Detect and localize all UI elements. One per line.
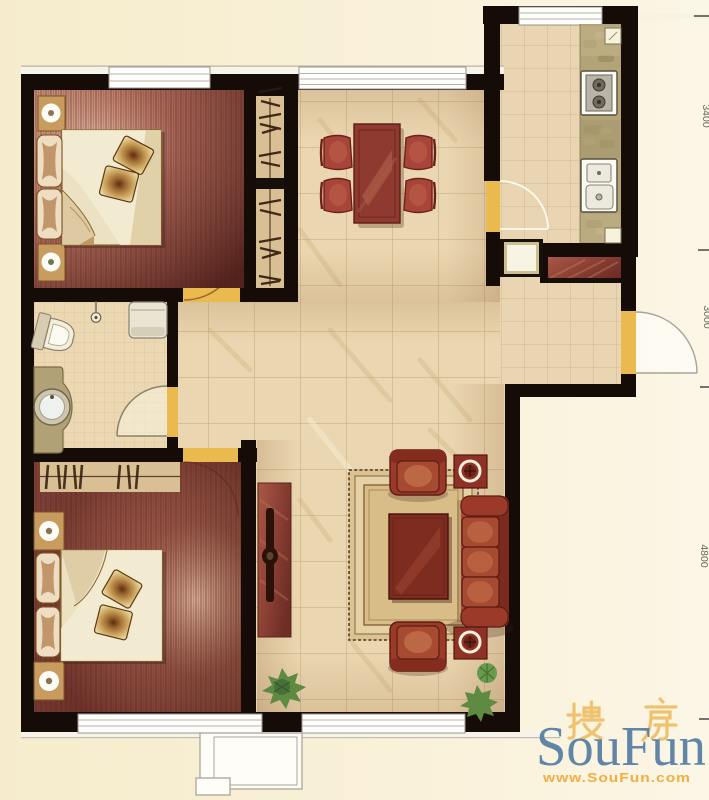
svg-text:SouFun: SouFun (536, 716, 706, 778)
svg-text:3400: 3400 (700, 104, 709, 128)
svg-text:www.SouFun.com: www.SouFun.com (542, 771, 691, 785)
svg-text:4800: 4800 (698, 544, 709, 568)
svg-text:3000: 3000 (701, 305, 709, 329)
